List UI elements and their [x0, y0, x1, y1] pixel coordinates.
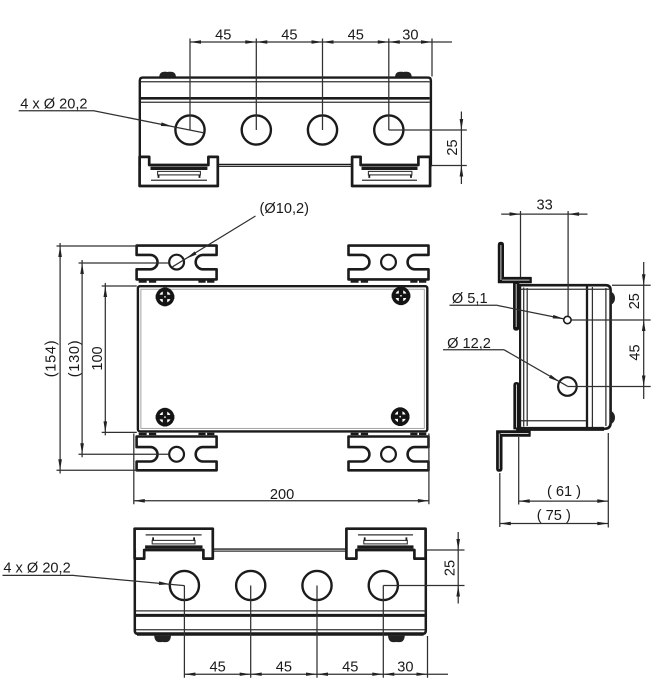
svg-text:4 x Ø 20,2: 4 x Ø 20,2: [3, 561, 70, 577]
svg-text:30: 30: [397, 659, 413, 675]
svg-text:25: 25: [445, 139, 461, 155]
svg-text:25: 25: [442, 560, 458, 576]
svg-text:(154): (154): [44, 340, 60, 378]
svg-text:45: 45: [276, 659, 292, 675]
svg-text:30: 30: [402, 27, 418, 43]
svg-text:( 61 ): ( 61 ): [547, 484, 581, 500]
svg-text:(Ø10,2): (Ø10,2): [260, 201, 309, 217]
svg-text:Ø 5,1: Ø 5,1: [452, 291, 488, 307]
svg-text:45: 45: [348, 27, 364, 43]
svg-text:45: 45: [342, 659, 358, 675]
svg-text:25: 25: [627, 293, 643, 309]
svg-text:45: 45: [628, 344, 644, 360]
svg-text:( 75 ): ( 75 ): [537, 508, 571, 524]
svg-text:100: 100: [90, 346, 106, 370]
svg-text:45: 45: [209, 659, 225, 675]
svg-text:200: 200: [270, 487, 294, 503]
svg-text:45: 45: [215, 27, 231, 43]
svg-text:45: 45: [281, 27, 297, 43]
svg-text:4 x Ø 20,2: 4 x Ø 20,2: [20, 96, 87, 112]
svg-text:(130): (130): [67, 340, 83, 378]
svg-text:33: 33: [536, 197, 552, 213]
